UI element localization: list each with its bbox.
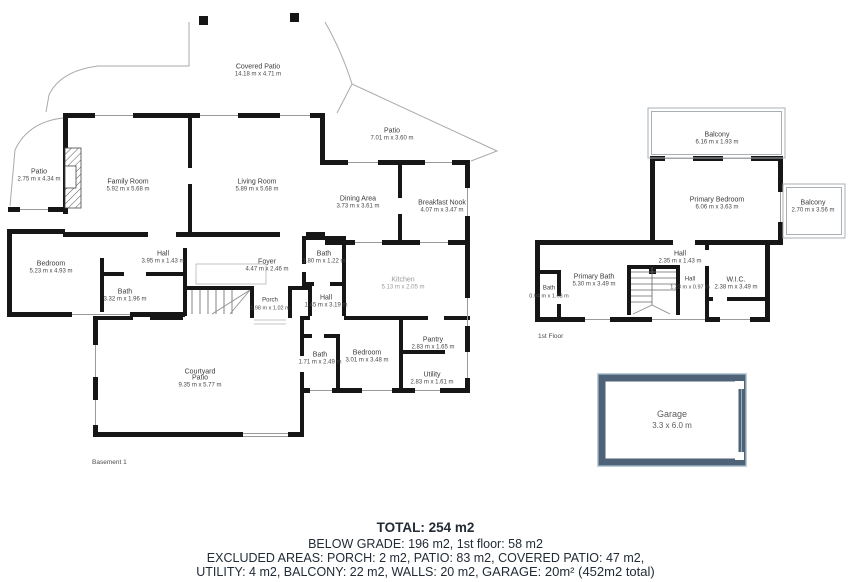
floor-plan-page: Covered Patio14.18 m x 4.71 m Patio2.75 …	[0, 0, 851, 582]
room-label-covered-patio: Covered Patio14.18 m x 4.71 m	[235, 63, 281, 80]
room-label-family-room: Family Room5.92 m x 5.68 m	[106, 178, 149, 195]
room-label-balcony-right: Balcony2.70 m x 3.56 m	[791, 199, 834, 216]
room-label-bath-basement-1: Bath3.32 m x 1.96 m	[103, 288, 146, 305]
room-label-bath-first: Bath0.94 m x 1.68 m	[529, 286, 568, 301]
room-label-hall-basement-2: Hall1.45 m x 3.19 m	[304, 294, 347, 311]
below-grade-text: BELOW GRADE: 196 m2, 1st floor: 58 m2	[0, 537, 851, 551]
room-label-wic: W.I.C.2.38 m x 3.49 m	[714, 276, 757, 293]
room-label-foyer: Foyer4.47 m x 2.46 m	[245, 258, 288, 275]
room-label-bedroom-left: Bedroom5.23 m x 4.93 m	[29, 260, 72, 277]
balcony-outlines	[648, 108, 845, 238]
first-floor-windows	[585, 159, 781, 320]
room-label-kitchen: Kitchen5.13 m x 2.05 m	[381, 276, 424, 293]
patio-columns	[199, 13, 299, 25]
total-area-text: TOTAL: 254 m2	[0, 520, 851, 535]
utility-balcony-walls-text: UTILITY: 4 m2, BALCONY: 22 m2, WALLS: 20…	[0, 564, 851, 579]
room-label-patio-left: Patio2.75 m x 4.34 m	[17, 168, 60, 185]
room-label-hall-first-2: Hall1.23 m x 0.97 m	[670, 277, 709, 292]
room-label-breakfast-nook: Breakfast Nook4.07 m x 3.47 m	[418, 199, 466, 216]
room-label-primary-bath: Primary Bath5.30 m x 3.49 m	[572, 273, 615, 290]
garage-area-note: GARAGE: 20m² (452m2 total)	[482, 564, 655, 579]
room-label-hall-basement: Hall3.95 m x 1.43 m	[141, 250, 184, 267]
stairs-first-floor	[631, 267, 676, 314]
room-label-porch: Porch1.98 m x 1.02 m	[250, 298, 289, 313]
room-label-bath-basement-2: Bath1.80 m x 1.22 m	[302, 250, 345, 267]
room-label-bedroom-2: Bedroom3.01 m x 3.48 m	[345, 349, 388, 366]
room-label-utility: Utility2.83 m x 1.61 m	[410, 371, 453, 388]
basement-floor-caption: Basement 1	[92, 459, 127, 466]
room-label-bath-basement-3: Bath1.71 m x 2.49 m	[298, 351, 341, 368]
room-label-patio-top: Patio7.01 m x 3.60 m	[370, 127, 413, 144]
room-label-pantry: Pantry2.83 m x 1.65 m	[411, 336, 454, 353]
room-label-dining-area: Dining Area3.73 m x 3.61 m	[336, 195, 379, 212]
room-label-hall-first-1: Hall2.35 m x 1.43 m	[658, 250, 701, 267]
first-floor-caption: 1st Floor	[538, 333, 563, 340]
garage-label: Garage3.3 x 6.0 m	[652, 409, 692, 431]
room-label-living-room: Living Room5.89 m x 5.68 m	[235, 178, 278, 195]
porch-steps	[254, 320, 286, 324]
utility-balcony-walls-part: UTILITY: 4 m2, BALCONY: 22 m2, WALLS: 20…	[196, 565, 478, 579]
room-label-courtyard-patio: Courtyard Patio 9.35 m x 5.77 m	[178, 368, 221, 391]
first-floor-walls	[535, 156, 783, 322]
excluded-areas-text: EXCLUDED AREAS: PORCH: 2 m2, PATIO: 83 m…	[0, 551, 851, 565]
room-label-balcony-top: Balcony6.16 m x 1.93 m	[695, 131, 738, 148]
fireplace-hatch	[65, 148, 81, 208]
room-label-primary-bedroom: Primary Bedroom6.06 m x 3.63 m	[690, 196, 744, 213]
